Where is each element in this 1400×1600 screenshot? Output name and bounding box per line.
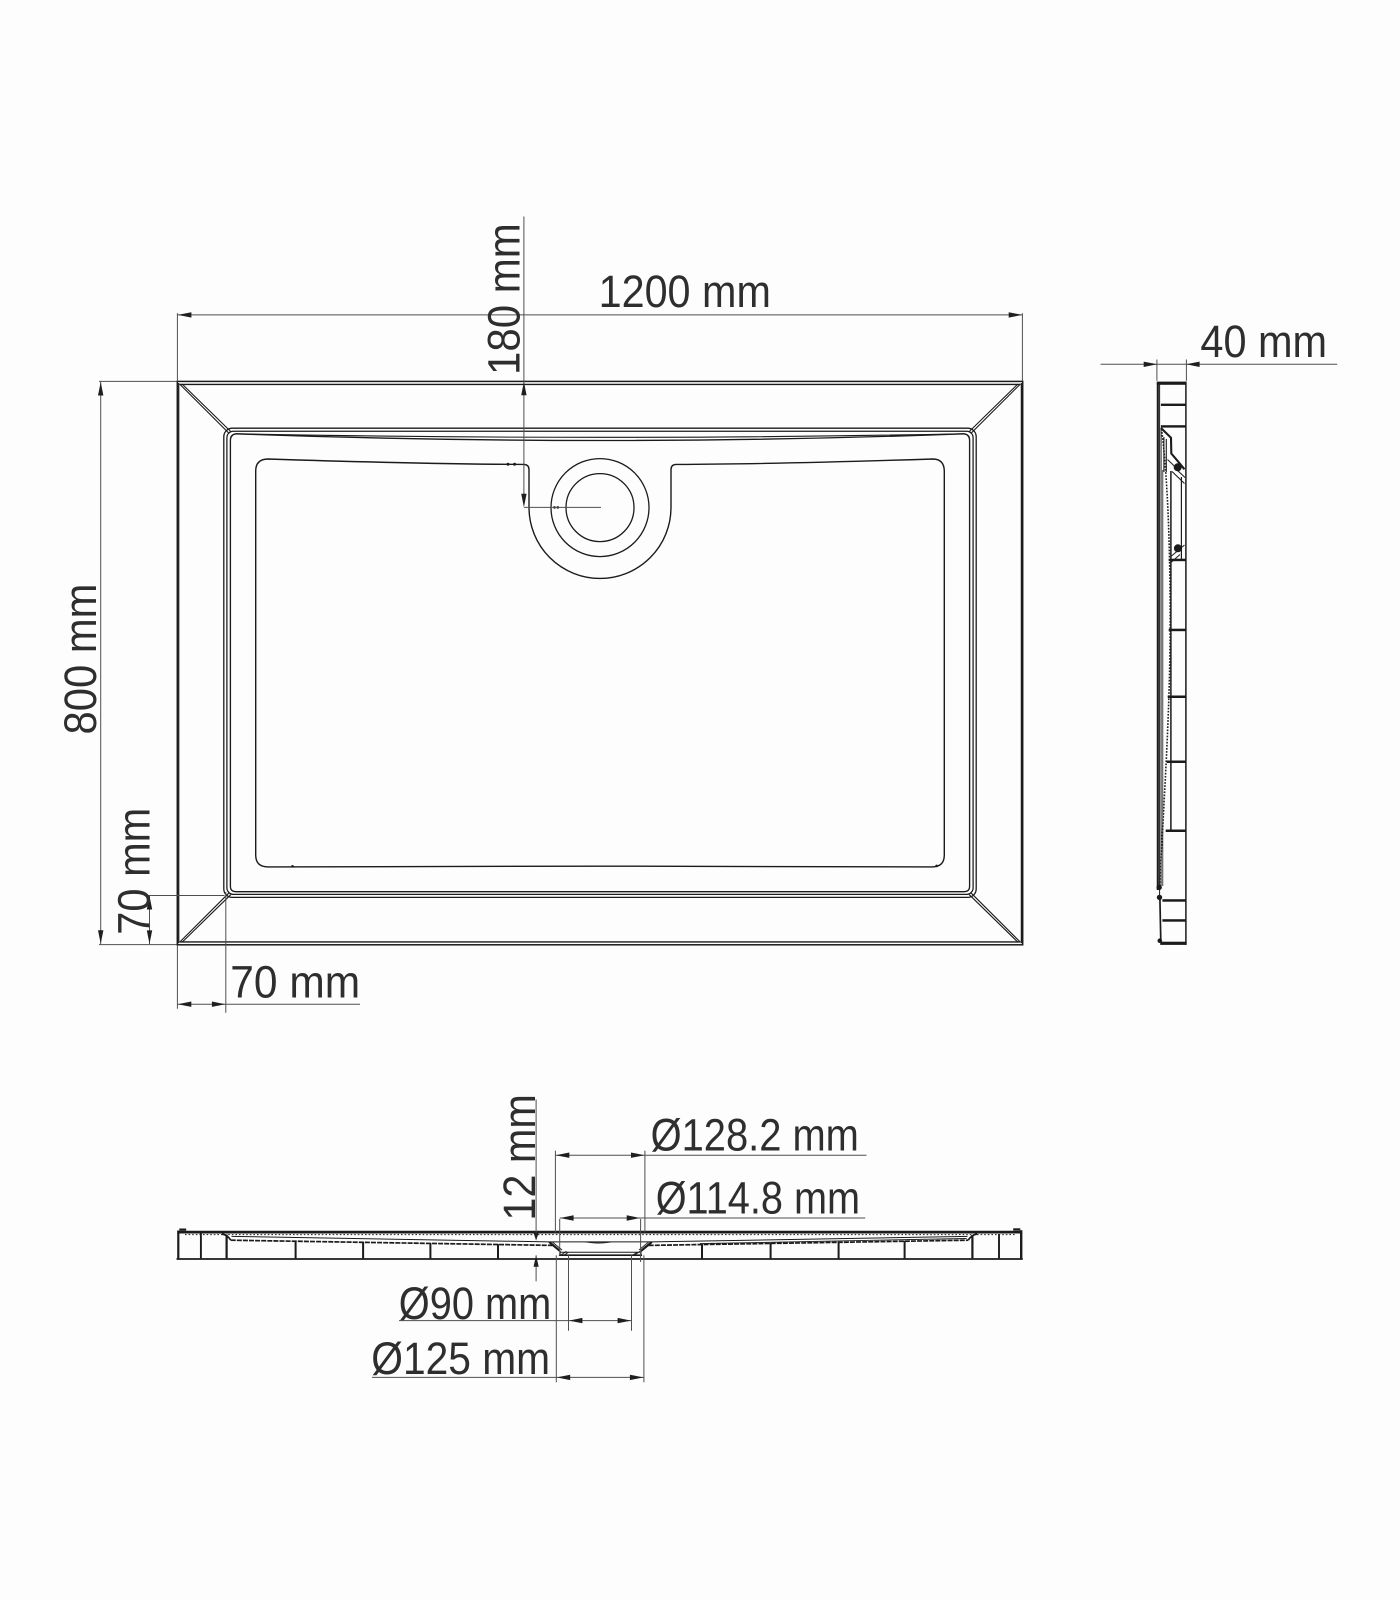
svg-text:70 mm: 70 mm <box>230 956 360 1007</box>
svg-text:40 mm: 40 mm <box>1200 316 1327 367</box>
svg-text:1200 mm: 1200 mm <box>599 266 771 317</box>
svg-text:Ø90 mm: Ø90 mm <box>399 1278 552 1329</box>
svg-text:180 mm: 180 mm <box>478 223 529 375</box>
svg-text:Ø114.8 mm: Ø114.8 mm <box>656 1173 860 1224</box>
svg-text:70 mm: 70 mm <box>108 808 159 935</box>
svg-text:12 mm: 12 mm <box>494 1094 545 1221</box>
svg-text:800 mm: 800 mm <box>55 584 106 735</box>
svg-text:Ø128.2 mm: Ø128.2 mm <box>651 1110 859 1161</box>
svg-text:Ø125 mm: Ø125 mm <box>371 1333 550 1384</box>
